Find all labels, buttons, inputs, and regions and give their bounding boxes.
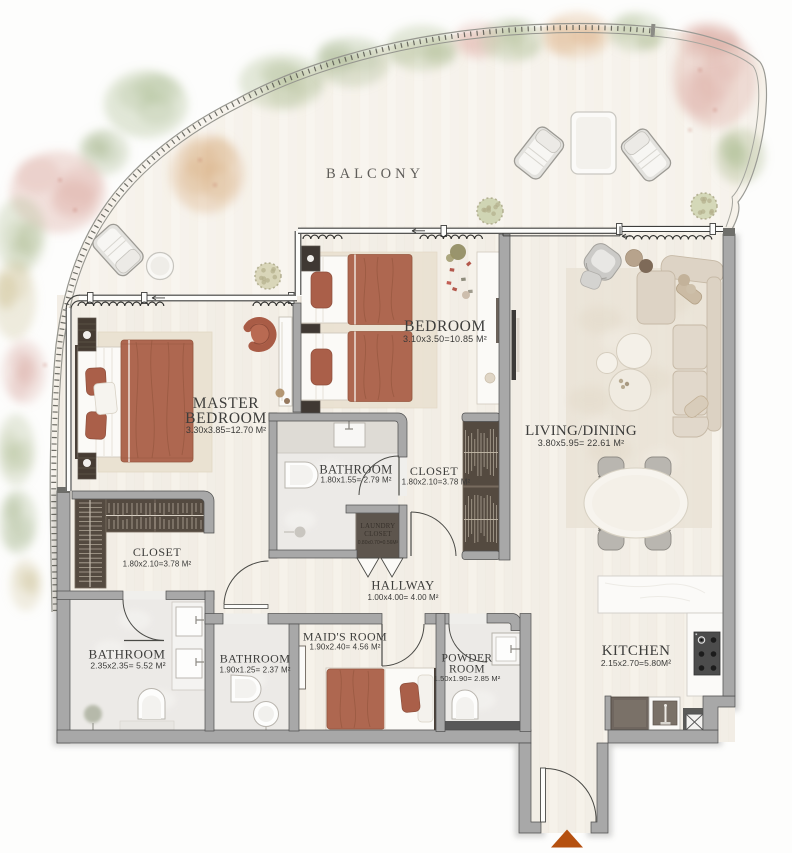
svg-text:BEDROOM: BEDROOM [404,318,486,335]
svg-text:2.15x2.70=5.80M²: 2.15x2.70=5.80M² [601,658,671,668]
svg-text:CLOSET: CLOSET [133,545,182,559]
svg-text:BATHROOM: BATHROOM [319,463,392,477]
svg-text:MAID'S ROOM: MAID'S ROOM [303,630,387,644]
svg-text:1.80x1.55= 2.79 M²: 1.80x1.55= 2.79 M² [321,476,392,485]
svg-text:1.80x2.10=3.78 M²: 1.80x2.10=3.78 M² [402,478,471,487]
svg-text:BALCONY: BALCONY [326,166,424,182]
svg-text:HALLWAY: HALLWAY [371,579,434,593]
svg-text:BATHROOM: BATHROOM [220,652,291,666]
svg-text:CLOSET: CLOSET [410,464,459,478]
svg-text:3.80x5.95= 22.61 M²: 3.80x5.95= 22.61 M² [538,438,625,448]
svg-text:1.00x4.00= 4.00 M²: 1.00x4.00= 4.00 M² [368,593,439,602]
svg-text:1.50x1.90= 2.85 M²: 1.50x1.90= 2.85 M² [434,674,501,683]
svg-text:1.90x1.25= 2.37 M²: 1.90x1.25= 2.37 M² [220,666,291,675]
svg-text:CLOSET: CLOSET [364,531,392,538]
svg-text:1.90x2.40= 4.56 M²: 1.90x2.40= 4.56 M² [310,643,381,652]
svg-text:LAUNDRY: LAUNDRY [361,523,396,530]
svg-text:KITCHEN: KITCHEN [602,643,671,659]
svg-text:LIVING/DINING: LIVING/DINING [525,423,637,439]
svg-text:2.35x2.35= 5.52 M²: 2.35x2.35= 5.52 M² [90,661,165,671]
svg-text:3.10x3.50=10.85 M²: 3.10x3.50=10.85 M² [403,334,487,344]
svg-text:BATHROOM: BATHROOM [89,647,166,662]
svg-text:1.80x2.10=3.78 M²: 1.80x2.10=3.78 M² [123,560,192,569]
svg-text:3.30x3.85=12.70 M²: 3.30x3.85=12.70 M² [186,425,266,435]
svg-text:0.80x0.70=0.56M²: 0.80x0.70=0.56M² [358,540,399,546]
